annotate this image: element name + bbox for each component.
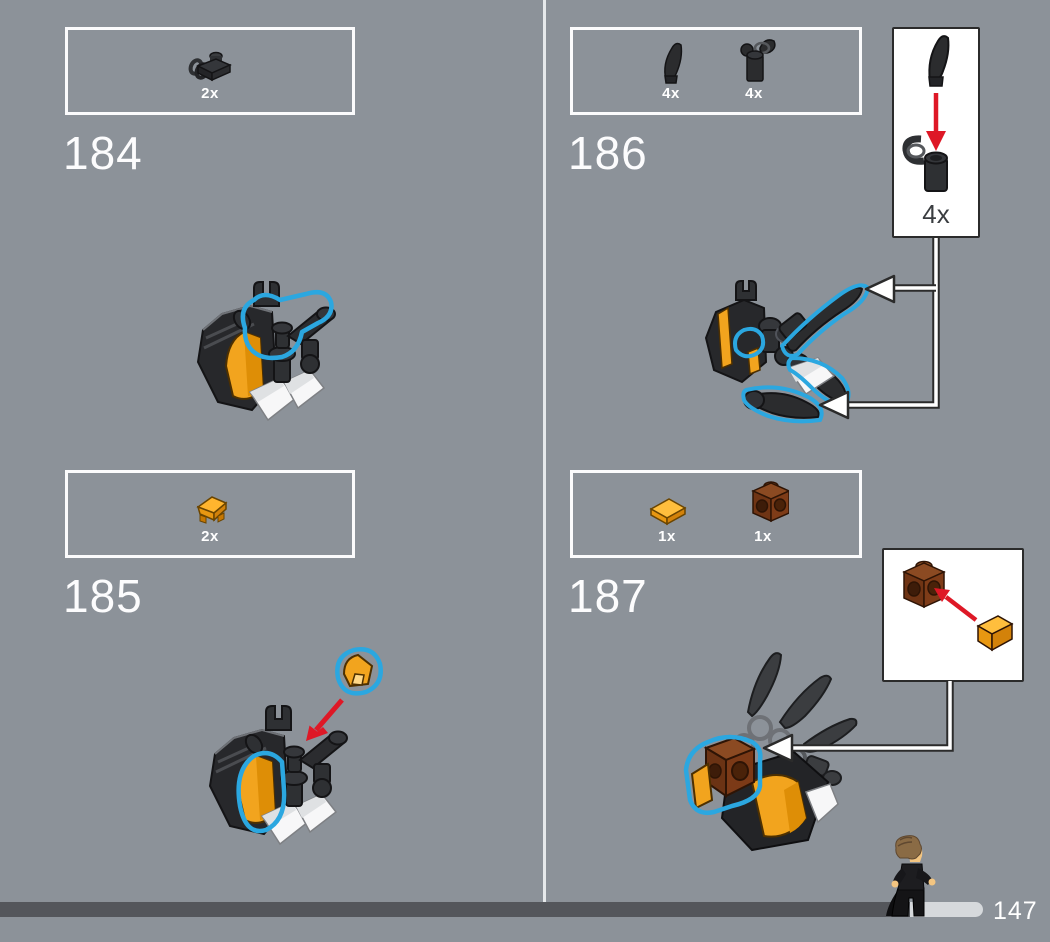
qty-label: 1x [658, 528, 676, 545]
qty-label: 1x [754, 528, 772, 545]
parts-box-step-184: 2x [65, 27, 355, 115]
assembly-186-illustration [692, 254, 880, 426]
assembly-184-illustration [190, 262, 355, 430]
black-claw-horn-icon [656, 38, 686, 84]
parts-box-step-187: 1x 1x [570, 470, 862, 558]
red-arrow-icon [926, 93, 946, 151]
orange-tile-icon [978, 616, 1012, 650]
part-black-clip-plate: 2x [186, 44, 234, 102]
brown-stud-brick-icon [904, 562, 944, 608]
step-number-187: 187 [568, 573, 648, 619]
orange-tile-icon [643, 493, 691, 527]
step-number-184: 184 [63, 130, 143, 176]
red-arrow-icon [934, 588, 976, 620]
part-orange-wedge-plate: 2x [188, 489, 232, 545]
progress-bar-fill [0, 902, 910, 917]
page-number: 147 [993, 897, 1038, 926]
black-robot-arm-icon [906, 139, 947, 191]
orange-wedge-plate-icon [188, 489, 232, 527]
brown-stud-brick-icon [737, 479, 789, 527]
step-number-186: 186 [568, 130, 648, 176]
callout-box-step-187 [882, 548, 1024, 682]
floating-orange-piece [337, 649, 380, 693]
callout-qty-label: 4x [922, 199, 949, 230]
callout-box-step-186: 4x [892, 27, 980, 238]
part-brown-stud-brick: 1x [737, 479, 789, 545]
callout-186-diagram [894, 29, 978, 201]
callout-187-diagram [884, 550, 1022, 680]
qty-label: 2x [201, 85, 219, 102]
column-divider [543, 0, 546, 903]
black-claw-horn-icon [929, 36, 948, 86]
minifigure-icon [878, 834, 940, 920]
part-orange-tile: 1x [643, 493, 691, 545]
step-number-185: 185 [63, 573, 143, 619]
black-clip-plate-icon [186, 44, 234, 84]
part-black-claw-horn: 4x [656, 38, 686, 102]
assembly-185-illustration [192, 640, 402, 855]
parts-box-step-186: 4x 4x [570, 27, 862, 115]
qty-label: 4x [745, 85, 763, 102]
qty-label: 4x [662, 85, 680, 102]
parts-box-step-185: 2x [65, 470, 355, 558]
qty-label: 2x [201, 528, 219, 545]
part-black-robot-arm: 4x [732, 36, 776, 102]
instruction-page: 2x 184 [0, 0, 1050, 942]
black-robot-arm-icon [732, 36, 776, 84]
assembly-187-illustration [656, 650, 888, 872]
